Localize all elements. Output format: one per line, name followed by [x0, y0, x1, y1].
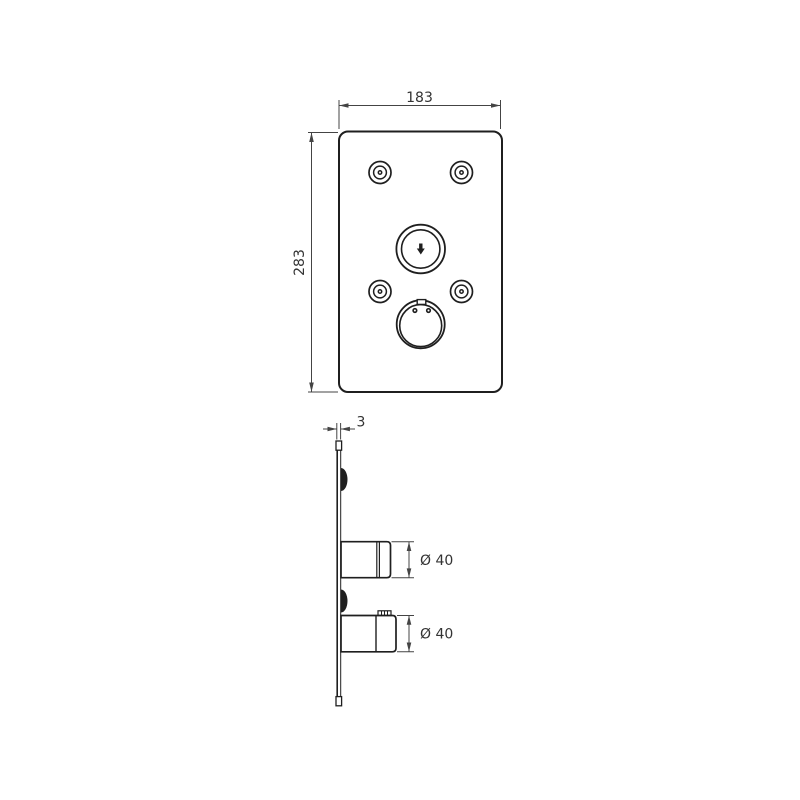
- dimension-height: 283: [292, 133, 338, 393]
- plate-bottom-cap: [336, 697, 342, 706]
- screw-bump-upper: [341, 468, 348, 491]
- lower-knob-profile: [341, 611, 396, 652]
- plate-top-cap: [336, 441, 342, 450]
- lower-knob-diameter-label: Ø 40: [420, 627, 453, 643]
- screw-bump-lower: [341, 590, 348, 613]
- knob-index-tab: [417, 300, 426, 305]
- dimension-lower-knob: Ø 40: [397, 616, 453, 652]
- dimension-thickness: 3: [323, 415, 365, 440]
- thickness-dimension-label: 3: [357, 415, 366, 431]
- front-view: 183 283: [292, 90, 502, 392]
- upper-knob-profile: [341, 542, 391, 578]
- technical-drawing: 183 283: [0, 0, 800, 800]
- height-dimension-label: 283: [292, 249, 308, 276]
- drawing-canvas: 183 283: [0, 0, 800, 800]
- side-view: Ø 40 Ø 40: [323, 415, 453, 706]
- dimension-upper-knob: Ø 40: [392, 542, 454, 578]
- upper-knob-diameter-label: Ø 40: [420, 553, 453, 569]
- dimension-width: 183: [339, 90, 501, 129]
- width-dimension-label: 183: [406, 90, 433, 106]
- faceplate-outline: [339, 132, 502, 393]
